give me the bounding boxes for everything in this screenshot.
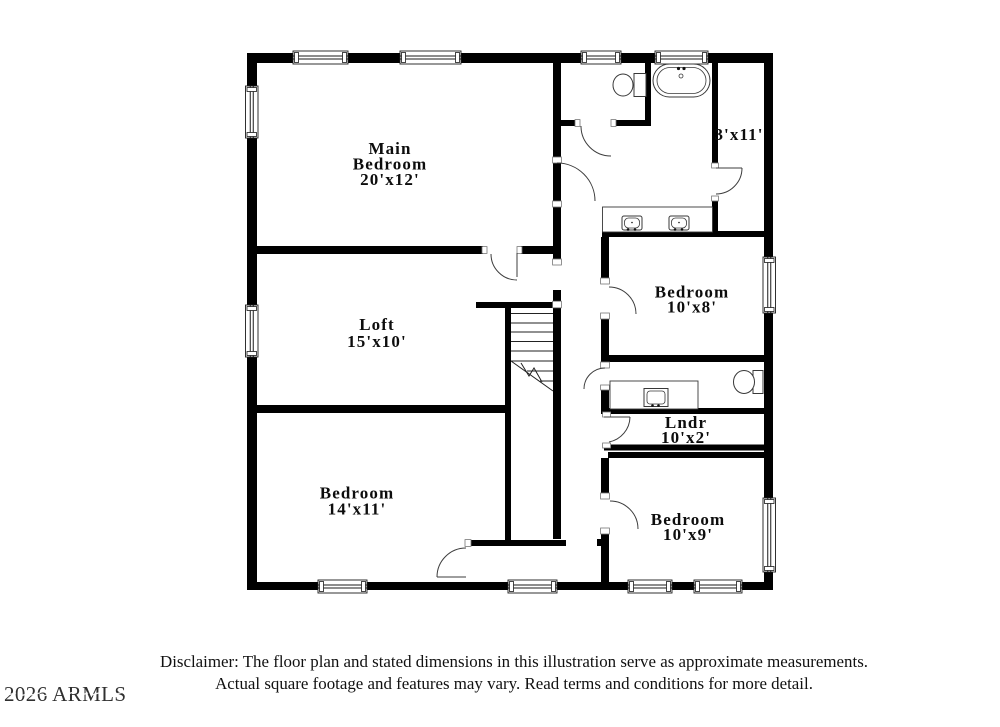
svg-text:10'x2': 10'x2' <box>661 428 711 447</box>
svg-text:15'x10': 15'x10' <box>347 332 407 351</box>
svg-text:20'x12': 20'x12' <box>360 170 420 189</box>
svg-text:Actual square footage and feat: Actual square footage and features may v… <box>215 674 813 693</box>
svg-text:10'x9': 10'x9' <box>663 525 713 544</box>
svg-text:10'x8': 10'x8' <box>667 298 717 317</box>
svg-text:3'x11': 3'x11' <box>714 125 763 144</box>
svg-text:14'x11': 14'x11' <box>328 500 387 519</box>
svg-text:Disclaimer: The floor plan and: Disclaimer: The floor plan and stated di… <box>160 652 868 671</box>
